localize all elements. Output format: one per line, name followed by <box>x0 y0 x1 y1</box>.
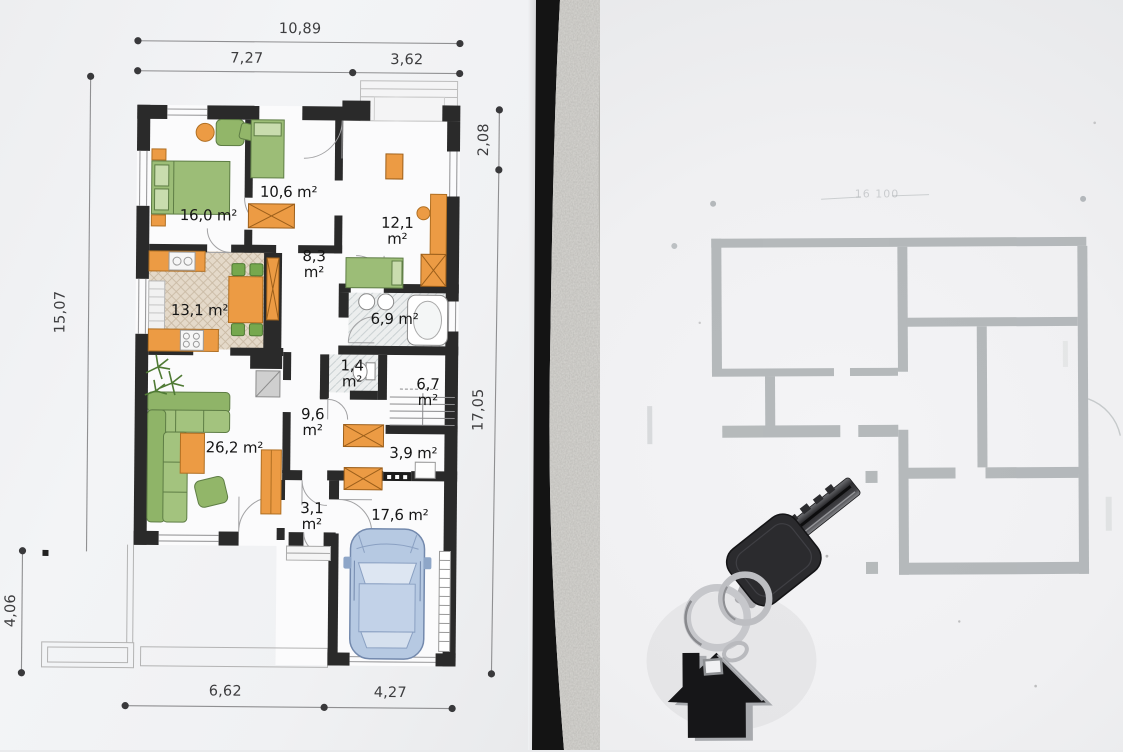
entry-steps <box>286 546 330 560</box>
faint-dimension-label: 16 100 <box>855 188 900 201</box>
fireplace <box>256 371 280 397</box>
dimension-label: 7,27 <box>230 51 263 67</box>
left-floor-plan-sheet: 10,89 7,27 3,62 2,08 17,05 15,07 4,06 6,… <box>0 0 532 750</box>
room-label-entry: 3,1 m² <box>300 500 324 533</box>
bedroom-2-furniture <box>251 120 285 178</box>
room-label-bedroom-3: 12,1 m² <box>381 215 414 248</box>
left-plan: 10,89 7,27 3,62 2,08 17,05 15,07 4,06 6,… <box>0 0 535 752</box>
dimension-label: 15,07 <box>52 291 68 334</box>
scene: 10,89 7,27 3,62 2,08 17,05 15,07 4,06 6,… <box>0 0 1123 750</box>
keychain-hole <box>704 659 722 674</box>
room-label-bathroom: 6,9 m² <box>370 311 418 328</box>
room-label-garage: 17,6 m² <box>371 507 429 524</box>
dimension-label: 2,08 <box>476 123 492 156</box>
right-floor-plan-sheet: 16 100 <box>600 0 1123 750</box>
room-label-bedroom-2: 10,6 m² <box>260 184 318 201</box>
room-label-storage: 3,9 m² <box>389 445 437 462</box>
hall-cabinet <box>383 472 411 481</box>
car-top-view <box>343 529 432 660</box>
dimension-label: 10,89 <box>279 21 322 37</box>
dimension-label: 4,27 <box>374 685 407 701</box>
floor-plan-drawing <box>0 0 535 752</box>
dimension-label: 3,62 <box>390 52 423 68</box>
room-label-wc: 1,4 m² <box>340 357 364 390</box>
faint-plan-and-key <box>598 0 1123 751</box>
wardrobe-x <box>248 204 294 228</box>
room-label-stairs: 6,7 m² <box>416 376 440 409</box>
room-label-hallway-lower: 9,6 m² <box>301 406 325 439</box>
garage-gutter <box>439 551 451 651</box>
room-label-kitchen: 13,1 m² <box>171 302 229 319</box>
room-label-living-room: 26,2 m² <box>206 439 264 456</box>
dimension-label: 6,62 <box>209 683 242 699</box>
room-label-hallway-upper: 8,3 m² <box>302 248 326 281</box>
room-label-bedroom-main: 16,0 m² <box>180 207 238 224</box>
dimension-label: 17,05 <box>471 388 487 431</box>
dimension-label: 4,06 <box>3 594 19 627</box>
